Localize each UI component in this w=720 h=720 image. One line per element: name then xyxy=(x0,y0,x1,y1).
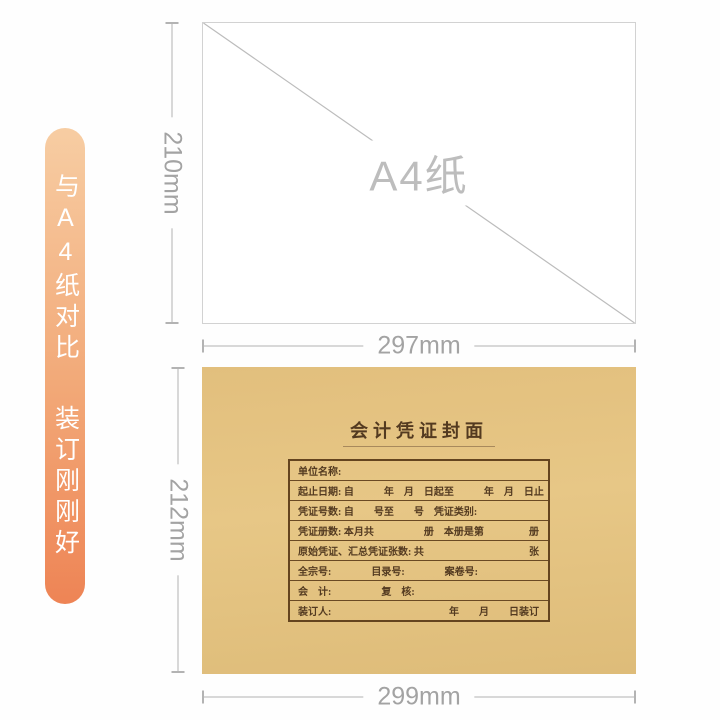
dimension-cap xyxy=(634,691,636,704)
dimension-cap xyxy=(166,22,179,24)
form-row-left-text: 原始凭证、汇总凭证张数: 共 xyxy=(298,543,424,558)
dimension-cap xyxy=(202,691,204,704)
form-row-left-text: 凭证册数: 本月共 册 本册是第 xyxy=(298,523,484,538)
form-row-left-text: 凭证号数: 自 号至 号 凭证类别: xyxy=(298,503,477,518)
form-row-left-text: 起止日期: 自 年 月 日起至 年 月 日止 xyxy=(298,483,544,498)
banner-text-binding-fit: 装订刚刚好 xyxy=(53,405,78,560)
form-row-left-text: 装订人: xyxy=(298,603,331,618)
dimension-cap xyxy=(172,367,185,369)
form-row-left-text: 单位名称: xyxy=(298,463,341,478)
dimension-cap xyxy=(166,322,179,324)
dimension-cap xyxy=(172,671,185,673)
dimension-label-297mm: 297mm xyxy=(363,332,474,361)
form-row-right-text: 年 月 日装订 xyxy=(449,603,539,618)
form-row-left-text: 全宗号: 目录号: 案卷号: xyxy=(298,563,478,578)
cover-title: 会计凭证封面 xyxy=(202,417,636,443)
form-row: 装订人:年 月 日装订 xyxy=(290,601,548,620)
form-row: 全宗号: 目录号: 案卷号: xyxy=(290,561,548,581)
banner-text-compare-a4: 与A4纸对比 xyxy=(53,173,78,365)
form-row: 原始凭证、汇总凭证张数: 共张 xyxy=(290,541,548,561)
dimension-label-210mm: 210mm xyxy=(158,117,187,228)
product-comparison-image: 与A4纸对比 装订刚刚好 A4纸 210mm 297mm 会计凭证封面 单位名称… xyxy=(0,0,720,720)
dimension-label-299mm: 299mm xyxy=(363,683,474,712)
form-row: 凭证册数: 本月共 册 本册是第册 xyxy=(290,521,548,541)
form-row-right-text: 张 xyxy=(529,543,539,558)
form-row: 单位名称: xyxy=(290,461,548,481)
dimension-line-a4-width: 297mm xyxy=(202,339,636,353)
promo-banner: 与A4纸对比 装订刚刚好 xyxy=(45,128,85,604)
a4-paper-sheet: A4纸 xyxy=(202,22,636,324)
dimension-line-a4-height: 210mm xyxy=(165,22,179,324)
voucher-cover-sheet: 会计凭证封面 单位名称:起止日期: 自 年 月 日起至 年 月 日止凭证号数: … xyxy=(202,367,636,674)
form-row: 起止日期: 自 年 月 日起至 年 月 日止 xyxy=(290,481,548,501)
dimension-cap xyxy=(634,340,636,353)
a4-paper-label: A4纸 xyxy=(355,141,482,206)
voucher-form-table: 单位名称:起止日期: 自 年 月 日起至 年 月 日止凭证号数: 自 号至 号 … xyxy=(288,459,550,622)
dimension-line-cover-height: 212mm xyxy=(171,367,185,673)
form-row-left-text: 会 计: 复 核: xyxy=(298,583,415,598)
form-row: 会 计: 复 核: xyxy=(290,581,548,601)
dimension-label-212mm: 212mm xyxy=(164,464,193,575)
form-row: 凭证号数: 自 号至 号 凭证类别: xyxy=(290,501,548,521)
dimension-line-cover-width: 299mm xyxy=(202,690,636,704)
form-row-right-text: 册 xyxy=(529,523,539,538)
dimension-cap xyxy=(202,340,204,353)
title-underline xyxy=(343,446,495,447)
